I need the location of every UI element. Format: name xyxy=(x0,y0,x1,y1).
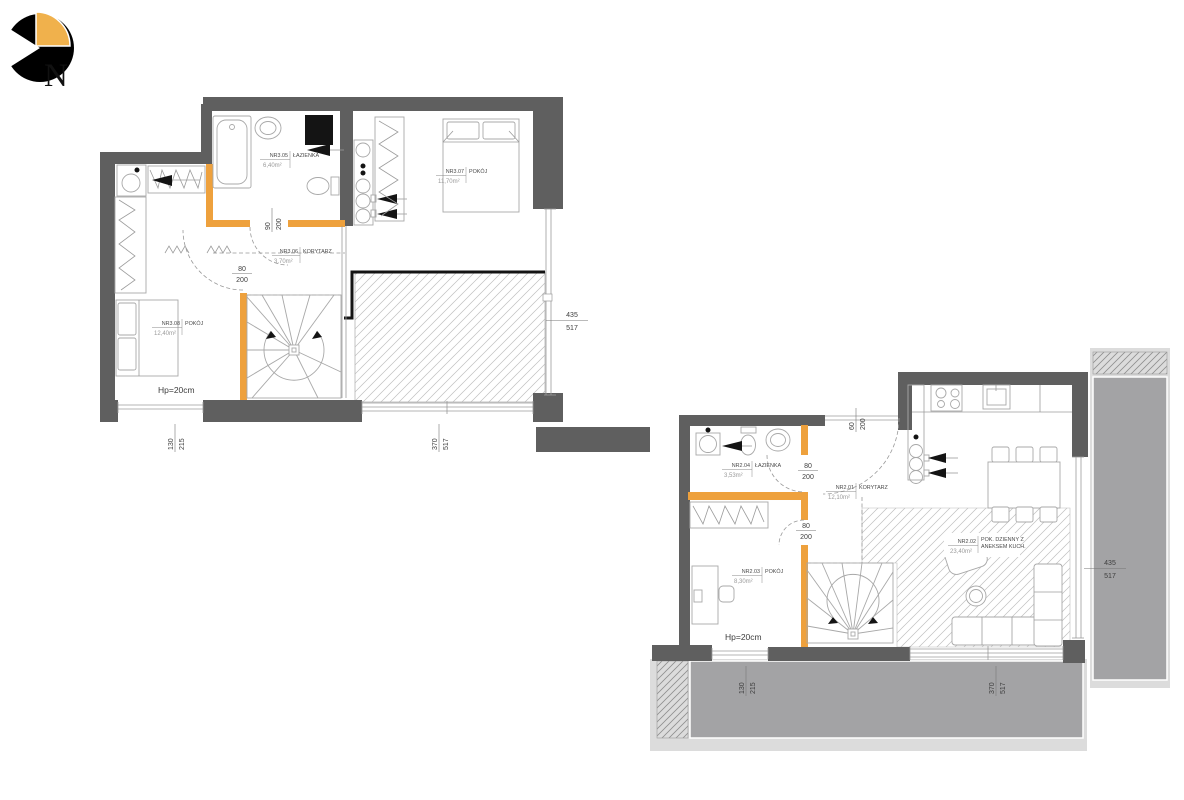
stair-newel-post xyxy=(289,345,299,355)
toilet-tank xyxy=(741,427,756,433)
entry-arrow-icon xyxy=(928,468,946,478)
bed xyxy=(443,119,519,212)
dim-value: 435 xyxy=(566,312,578,319)
room-name: POKÓJ xyxy=(469,168,488,175)
chair xyxy=(1040,447,1057,462)
dim-value: 517 xyxy=(566,325,578,332)
room-area: 6,40m² xyxy=(263,163,282,169)
dim-window-130x215-upper: 130 215 xyxy=(168,424,186,452)
room-name: KORYTARZ xyxy=(859,485,889,491)
dining-table xyxy=(988,462,1060,508)
stair-direction-arc xyxy=(827,574,879,617)
dim-window-370x517-upper: 370 517 xyxy=(432,424,450,452)
dim-value: 90 xyxy=(265,222,272,230)
desk xyxy=(692,566,718,624)
floorplan-canvas: N xyxy=(0,0,1184,800)
radiator xyxy=(165,246,189,253)
washing-machine xyxy=(700,436,717,453)
chair xyxy=(1016,507,1033,522)
floorplan-page: N xyxy=(0,0,1184,800)
room-area: 11,70m² xyxy=(438,179,460,185)
pillow xyxy=(118,338,136,370)
dim-value: 200 xyxy=(860,418,867,430)
room-name: ANEKSEM KUCH. xyxy=(981,544,1026,550)
lower-balcony-right xyxy=(1090,348,1170,688)
room-label-room-lower: NR2.03 POKÓJ 8,30m² xyxy=(732,567,784,585)
upper-utility-nook xyxy=(117,165,146,196)
lower-orange-partitions xyxy=(688,425,808,647)
room-area: 23,40m² xyxy=(950,549,972,555)
stair-newel-post xyxy=(848,629,858,639)
room-door-swing xyxy=(779,520,804,545)
lower-desk-room xyxy=(692,566,734,624)
dim-value: 80 xyxy=(804,463,812,470)
radiator xyxy=(207,246,231,253)
lower-wardrobe xyxy=(690,502,768,528)
shower-unit xyxy=(305,115,333,145)
dim-value: 130 xyxy=(739,682,746,694)
room-area: 12,40m² xyxy=(154,331,176,337)
coffee-table xyxy=(966,586,986,606)
lower-floor-plan: NR2.04 ŁAZIENKA 3,53m² NR2.01 KORYTARZ 1… xyxy=(650,348,1170,751)
washbasin xyxy=(255,117,281,139)
bathtub xyxy=(213,116,251,188)
upper-adjacent-slab xyxy=(536,427,650,452)
chair xyxy=(992,507,1009,522)
room-number: NR3.08 xyxy=(162,321,180,327)
dim-value: 80 xyxy=(802,523,810,530)
dim-value: 200 xyxy=(236,277,248,284)
upper-window-bottom-right xyxy=(362,401,533,414)
wardrobe xyxy=(115,197,146,293)
upper-staircase xyxy=(247,295,341,398)
room-name: ŁAZIENKA xyxy=(293,153,319,159)
toilet-tank xyxy=(331,177,339,195)
room-label-bathroom-upper: NR3.05 ŁAZIENKA 6,40m² xyxy=(260,151,319,169)
north-letter: N xyxy=(44,58,68,94)
room-label-corridor-lower: NR2.01 KORYTARZ 12,10m² xyxy=(826,483,889,501)
room-name: POKÓJ xyxy=(185,320,204,327)
parapet-note-upper: Hp=20cm xyxy=(158,385,195,395)
toilet xyxy=(307,178,329,195)
room-number: NR3.06 xyxy=(280,249,298,255)
room-area: 3,70m² xyxy=(274,259,293,265)
dim-value: 435 xyxy=(1104,560,1116,567)
desk-chair xyxy=(719,586,734,602)
north-quadrant xyxy=(36,12,70,46)
washing-machine xyxy=(122,174,140,192)
room-number: NR2.04 xyxy=(732,463,750,469)
dim-door-90x200: 90 200 xyxy=(265,208,283,232)
entry-arrow-icon xyxy=(377,209,397,219)
sofa xyxy=(952,617,1042,645)
pillow xyxy=(447,122,479,139)
lower-balcony-bottom xyxy=(650,659,1087,751)
upper-thin-lines xyxy=(342,226,346,398)
upper-dashed-lines xyxy=(183,227,345,295)
room-number: NR2.01 xyxy=(836,485,854,491)
entry-arrow-icon xyxy=(928,453,946,463)
room-area: 12,10m² xyxy=(828,495,850,501)
upper-floor-plan: NR3.05 ŁAZIENKA 6,40m² NR3.06 KORYTARZ 3… xyxy=(100,97,650,452)
room-number: NR3.05 xyxy=(270,153,288,159)
room-name: POK. DZIENNY Z xyxy=(981,537,1024,543)
room-name: ŁAZIENKA xyxy=(755,463,781,469)
room-label-corridor-upper: NR3.06 KORYTARZ 3,70m² xyxy=(272,247,333,265)
vent-dot xyxy=(135,168,140,173)
entry-arrow-icon xyxy=(377,194,397,204)
dim-door-80x200: 80 200 xyxy=(232,266,252,284)
parapet-note-lower: Hp=20cm xyxy=(725,632,762,642)
north-indicator: N xyxy=(2,12,74,94)
dim-door-80x200-bath-lower: 80 200 xyxy=(798,463,818,481)
dim-value: 200 xyxy=(276,218,283,230)
pillow xyxy=(118,303,136,335)
dim-door-80x200-room-lower: 80 200 xyxy=(796,523,816,541)
dim-window-435x517-upper: 435 517 xyxy=(546,312,588,332)
lower-window-bottom-right xyxy=(910,646,1063,660)
dim-value: 60 xyxy=(849,422,856,430)
vent-dot xyxy=(706,428,711,433)
bath-door-swing xyxy=(767,455,804,492)
dim-value: 517 xyxy=(443,438,450,450)
pillow xyxy=(483,122,515,139)
upper-wardrobe-top xyxy=(148,166,205,193)
chair xyxy=(1040,507,1057,522)
room-label-living-lower: NR2.02 POK. DZIENNY Z ANEKSEM KUCH. 23,4… xyxy=(944,533,1026,557)
dim-value: 517 xyxy=(1104,573,1116,580)
wardrobe xyxy=(375,117,404,221)
upper-window-bottom-left xyxy=(118,402,203,413)
room-area: 8,30m² xyxy=(734,579,753,585)
lower-window-bottom-left xyxy=(712,648,768,659)
dim-value: 130 xyxy=(168,438,175,450)
lower-window-right xyxy=(1072,457,1084,638)
entry-arrow-icon xyxy=(722,441,742,451)
balcony-edge-hatch xyxy=(1093,352,1167,374)
dim-value: 80 xyxy=(238,266,246,273)
dim-value: 370 xyxy=(432,438,439,450)
room-label-bedroom-upper: NR3.07 POKÓJ 11,70m² xyxy=(436,167,488,185)
dim-value: 200 xyxy=(800,534,812,541)
room-name: POKÓJ xyxy=(765,568,784,575)
lower-bathroom xyxy=(696,427,790,455)
dim-value: 517 xyxy=(1000,682,1007,694)
dim-value: 370 xyxy=(989,682,996,694)
room-label-bathroom-lower: NR2.04 ŁAZIENKA 3,53m² xyxy=(722,461,781,479)
washbasin xyxy=(766,429,790,451)
cooktop xyxy=(931,385,962,411)
balcony-edge-hatch xyxy=(657,661,688,738)
room-number: NR2.02 xyxy=(958,539,976,545)
lower-staircase xyxy=(807,563,893,643)
chair xyxy=(1016,447,1033,462)
entry-arrow-icon xyxy=(152,175,172,186)
room-area: 3,53m² xyxy=(724,473,743,479)
dining-set xyxy=(988,447,1060,522)
sofa xyxy=(1034,564,1062,646)
dim-value: 215 xyxy=(179,438,186,450)
room-name: KORYTARZ xyxy=(303,249,333,255)
chair xyxy=(992,447,1009,462)
upper-bedroom xyxy=(354,117,519,225)
toilet xyxy=(741,435,756,455)
upper-hatched-area xyxy=(355,272,545,402)
room-number: NR2.03 xyxy=(742,569,760,575)
upper-room-door-swing xyxy=(183,230,243,290)
dim-value: 200 xyxy=(802,474,814,481)
room-number: NR3.07 xyxy=(446,169,464,175)
dim-value: 215 xyxy=(750,682,757,694)
